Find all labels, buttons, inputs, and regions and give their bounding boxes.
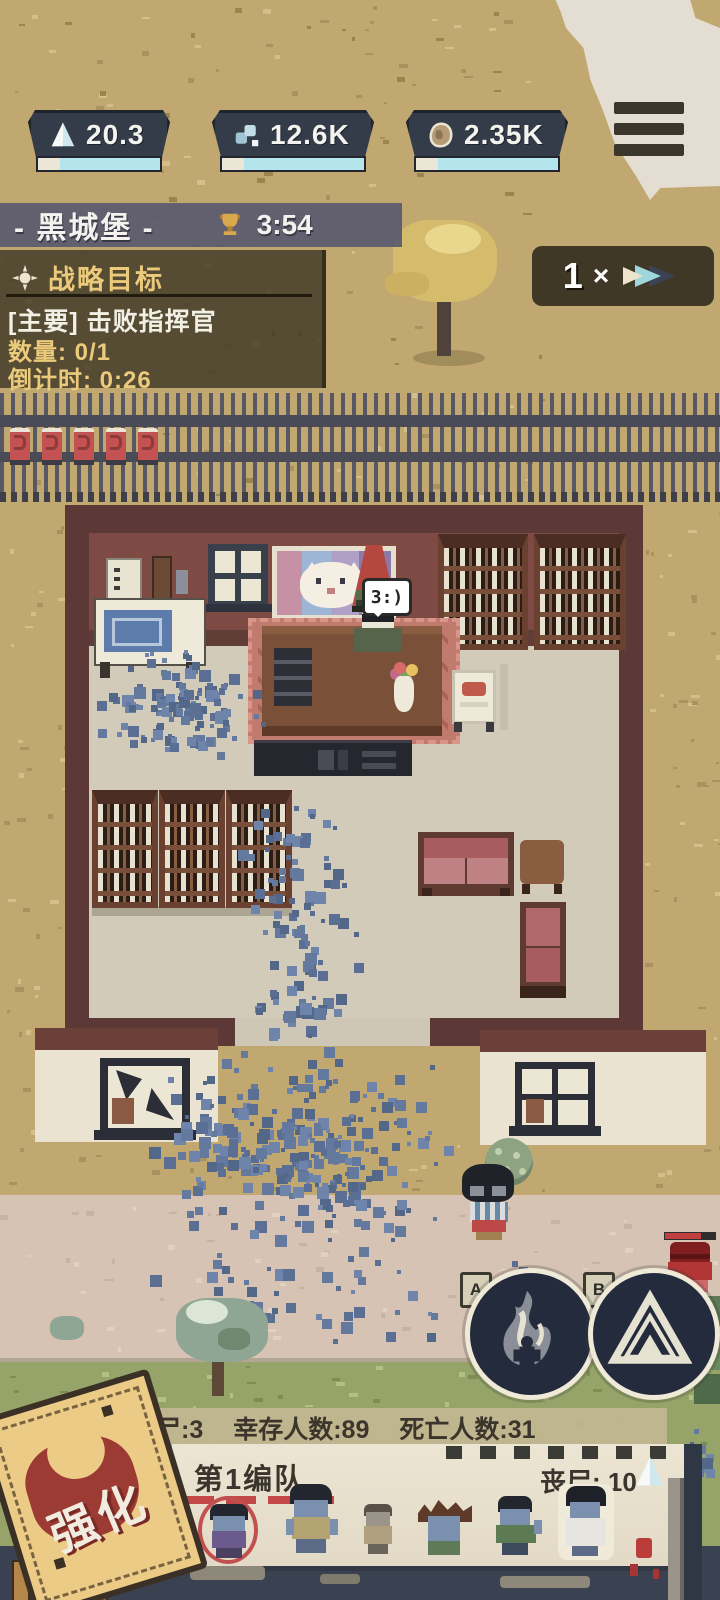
bookshelf [534,534,626,650]
survivor-shirt [470,1202,508,1222]
menu-bar [614,123,684,135]
sofa-cushion [526,908,560,946]
objective-header: 战略目标 [12,258,164,297]
zombie-legs [216,1548,242,1558]
poster-cat-eye [316,578,321,584]
stool-leg [522,884,530,894]
sofa-leg [422,888,432,896]
location-timer: 3:54 [257,209,313,241]
bush-dot [495,1148,502,1155]
tree-foliage-light [425,224,481,254]
zombie-legs [296,1539,326,1553]
stone [320,1574,360,1584]
underbar-accent [416,158,438,170]
cubes-icon [232,120,262,150]
enemy-band [670,1254,710,1259]
roster-scrollbar-handle[interactable] [668,1478,684,1600]
yellow-tree [385,220,505,370]
squad-panel: 第1编队 丧尸: 10 [172,1444,686,1566]
zombie-pants [428,1541,460,1555]
cabinet-vent [362,763,396,769]
table-leg [186,662,196,678]
sofa-cushion [424,858,465,884]
zombie-face [428,1516,460,1532]
ability-button-b[interactable] [588,1268,720,1400]
red-fence-cap [74,428,94,465]
bookshelf [92,790,158,908]
tree-foliage-low [385,272,429,296]
bookshelf [226,790,292,908]
survivor-basket [476,1232,502,1240]
underbar-accent [38,158,60,170]
squad-member-4[interactable] [418,1494,474,1564]
squad-member-1[interactable] [204,1502,258,1564]
zombie-body [212,1531,246,1548]
sail-icon [632,1452,668,1492]
cabinet-drawer [338,750,348,770]
speech-text: 3:) [371,587,404,608]
broken-window [100,1058,190,1136]
commander-body [354,628,402,652]
game-screen: 3:) [0,0,720,1600]
speed-value: 1 [563,255,583,297]
roster-scrollbar-track[interactable] [684,1444,702,1600]
cup [176,570,188,594]
tv-cabinet [254,740,412,776]
resource-underbar [220,156,366,172]
stool [520,840,564,896]
zombie-face [213,1516,245,1531]
building-door-gap [235,1018,430,1046]
zombie-face [366,1512,390,1526]
objective-title: 战略目标 [48,258,164,297]
status-bar: 丧尸:3 幸存人数:89 死亡人数:31 [95,1408,667,1448]
heater-leg [454,722,462,732]
sofa-cushion [526,948,560,982]
resource-badge-cubes[interactable]: 12.6K [212,110,374,160]
fence-rail-top [0,415,720,427]
status-deaths: 死亡人数:31 [399,1410,535,1446]
map-table [94,556,224,678]
sage-tree [160,1298,278,1402]
squad-member-6[interactable] [558,1484,616,1564]
target-compass-icon [12,265,38,291]
window-sill [509,1126,601,1136]
resource-underbar [36,156,162,172]
heater-line [460,702,488,707]
heater-leg [486,722,494,732]
bottle [152,556,172,602]
enemy-healthbar-fill [665,1233,701,1239]
sail-icon [48,120,78,150]
zombie-vest [292,1517,330,1539]
location-title: - 黑城堡 - [14,203,155,247]
cabinet-drawer [318,750,334,770]
bonfire-icon [482,1285,572,1375]
resource-value: 20.3 [86,119,145,151]
survivor-skirt [472,1220,506,1232]
commander-speech-bubble: 3:) [362,578,412,616]
book-stack [274,648,312,706]
flowers [394,662,406,674]
machine-dots [114,568,120,590]
stool-seat [520,840,564,884]
cabinet-vent [362,751,396,757]
objective-countdown: 倒计时: 0:26 [8,360,152,395]
sofa-horizontal [418,832,514,896]
stool-leg [554,884,562,894]
sofa-vertical [520,902,566,998]
zombie-face [294,1500,328,1517]
speed-times-symbol: × [593,260,609,292]
small-bush [50,1316,84,1340]
tree-foliage-dark [218,1328,250,1350]
location-bar: - 黑城堡 - 3:54 [0,203,402,247]
zombie-face [570,1502,600,1518]
zombie-face [500,1509,530,1525]
survivor-goggles [470,1186,484,1196]
red-fence-cap [106,428,126,465]
resource-underbar [414,156,560,172]
tree-foliage-light [186,1300,228,1324]
stone-icon [426,120,456,150]
fast-forward-icon [619,261,683,291]
zombie-shirt [496,1525,536,1543]
meat-chunk [636,1538,652,1558]
menu-bar [614,102,684,114]
resource-badge-stone[interactable]: 2.35K [406,110,568,160]
objective-divider [6,294,312,297]
status-survivors: 幸存人数:89 [233,1410,369,1446]
window-box [526,1099,544,1123]
menu-bar [614,144,684,156]
red-fence-cap [138,428,158,465]
resource-value: 2.35K [464,119,544,151]
window-sill [94,1130,196,1140]
zombie-arm [286,1519,294,1535]
bookshelf [159,790,225,908]
masked-survivor [462,1164,516,1242]
sofa-leg [500,888,510,896]
objective-panel: 战略目标 [主要] 击败指挥官 数量: 0/1 倒计时: 0:26 [0,250,326,388]
window-shard [116,1070,142,1100]
game-speed-control[interactable]: 1 × [532,246,714,306]
roof-trim-left [35,1028,218,1052]
resource-value: 12.6K [270,119,350,151]
table-leg [100,662,110,678]
zombie-legs [502,1543,528,1555]
survivor-hair [462,1164,514,1202]
hamburger-menu-icon[interactable] [614,102,684,165]
zombie-legs [572,1546,598,1556]
stone [500,1576,590,1588]
squad-member-3[interactable] [356,1504,404,1562]
heater-pole [500,664,508,730]
squad-member-2[interactable] [284,1484,340,1564]
underbar-accent [222,158,244,170]
building-left-wall [65,505,89,1046]
red-fence-cap [10,428,30,465]
red-fence-cap [42,428,62,465]
window-box [112,1098,134,1124]
sofa-back [424,838,508,858]
trophy-icon [215,210,245,240]
white-heater [452,664,508,736]
zombie-coat [566,1518,606,1546]
window-shard [146,1088,174,1120]
squad-member-5[interactable] [490,1496,544,1562]
sofa-base [520,986,566,998]
roof-trim-right [480,1030,706,1054]
zombie-arm [330,1519,338,1535]
facade-window-right [515,1062,595,1132]
enemy-head [670,1242,710,1262]
zombie-legs [368,1544,388,1554]
zombie-body [364,1526,392,1544]
fence-feet [0,492,720,502]
resource-badge-crystal[interactable]: 20.3 [28,110,170,160]
tent-icon [605,1285,695,1375]
sofa-cushion [467,858,508,884]
zombie-chest [428,1532,460,1541]
heater-body [452,670,496,724]
heater-red [462,682,486,696]
poster-cat-eye [340,578,345,584]
zombie-arm [534,1520,542,1534]
vase [394,676,414,712]
blueprint-lines [112,618,162,646]
ability-button-a[interactable] [465,1268,597,1400]
